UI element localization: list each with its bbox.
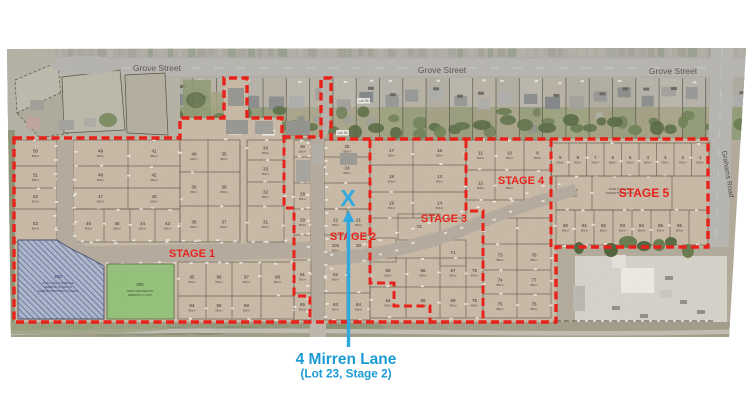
svg-text:4 Mirren Lane: 4 Mirren Lane xyxy=(296,351,397,368)
svg-text:STAGE 4: STAGE 4 xyxy=(498,175,545,187)
svg-text:(Lot 23, Stage 2): (Lot 23, Stage 2) xyxy=(300,367,391,381)
svg-text:STAGE 2: STAGE 2 xyxy=(330,231,376,243)
svg-text:STAGE 1: STAGE 1 xyxy=(169,248,215,260)
svg-text:STAGE 3: STAGE 3 xyxy=(421,213,467,225)
svg-text:X: X xyxy=(340,185,356,211)
svg-text:STAGE 5: STAGE 5 xyxy=(619,186,670,200)
